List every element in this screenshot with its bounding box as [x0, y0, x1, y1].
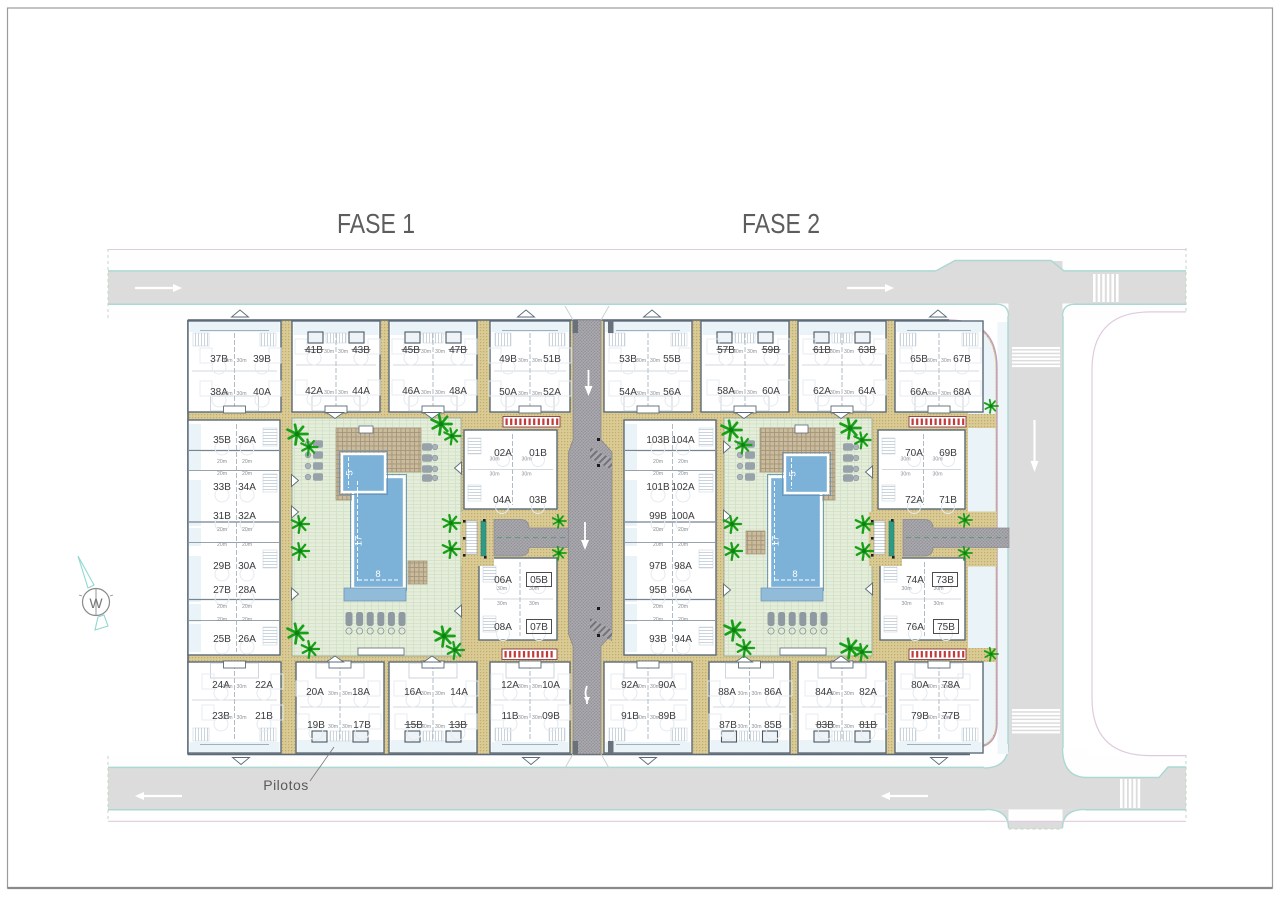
svg-text:43B: 43B — [352, 345, 370, 356]
svg-text:100A: 100A — [671, 511, 695, 522]
svg-text:30m: 30m — [941, 391, 951, 397]
svg-text:35B: 35B — [213, 435, 231, 446]
svg-text:FASE 2: FASE 2 — [742, 208, 820, 239]
svg-text:30m: 30m — [932, 457, 942, 463]
svg-text:25B: 25B — [213, 634, 231, 645]
svg-text:30m: 30m — [521, 457, 531, 463]
svg-text:56A: 56A — [663, 387, 681, 398]
svg-text:30m: 30m — [435, 691, 445, 697]
svg-text:30m: 30m — [636, 391, 646, 397]
svg-text:68A: 68A — [953, 387, 971, 398]
svg-text:30m: 30m — [650, 358, 660, 364]
svg-text:30m: 30m — [844, 390, 854, 396]
svg-text:01B: 01B — [529, 448, 547, 459]
svg-text:61B: 61B — [813, 345, 831, 356]
svg-text:30m: 30m — [529, 601, 539, 607]
svg-text:30m: 30m — [518, 684, 528, 690]
svg-text:36A: 36A — [238, 435, 256, 446]
svg-text:30m: 30m — [497, 586, 507, 592]
svg-text:75B: 75B — [937, 622, 955, 633]
svg-text:103B: 103B — [646, 435, 670, 446]
svg-text:30m: 30m — [489, 472, 499, 478]
svg-text:30m: 30m — [236, 715, 246, 721]
svg-text:30m: 30m — [650, 715, 660, 721]
svg-text:21B: 21B — [255, 711, 273, 722]
svg-text:71B: 71B — [939, 495, 957, 506]
svg-text:31B: 31B — [213, 511, 231, 522]
svg-text:26A: 26A — [238, 634, 256, 645]
svg-text:20m: 20m — [242, 542, 252, 548]
svg-text:90A: 90A — [658, 680, 676, 691]
svg-text:16A: 16A — [404, 687, 422, 698]
svg-text:87B: 87B — [719, 720, 737, 731]
svg-text:30m: 30m — [518, 715, 528, 721]
svg-text:20m: 20m — [217, 459, 227, 465]
svg-text:20m: 20m — [653, 542, 663, 548]
svg-text:30m: 30m — [532, 358, 542, 364]
svg-text:FASE 1: FASE 1 — [337, 208, 415, 239]
svg-text:20m: 20m — [653, 459, 663, 465]
svg-text:48A: 48A — [449, 386, 467, 397]
svg-text:30m: 30m — [733, 390, 743, 396]
svg-text:44A: 44A — [352, 386, 370, 397]
svg-text:20m: 20m — [678, 527, 688, 533]
svg-text:40A: 40A — [253, 387, 271, 398]
svg-text:08A: 08A — [494, 622, 512, 633]
svg-text:18A: 18A — [352, 687, 370, 698]
svg-text:30m: 30m — [222, 358, 232, 364]
svg-text:07B: 07B — [530, 622, 548, 633]
svg-text:30m: 30m — [751, 691, 761, 697]
svg-text:13B: 13B — [449, 720, 467, 731]
svg-text:30m: 30m — [222, 715, 232, 721]
svg-text:88A: 88A — [718, 687, 736, 698]
svg-text:51B: 51B — [543, 354, 561, 365]
svg-text:30m: 30m — [737, 691, 747, 697]
svg-text:30m: 30m — [338, 390, 348, 396]
svg-text:101B: 101B — [646, 482, 670, 493]
svg-text:30m: 30m — [636, 684, 646, 690]
svg-text:85B: 85B — [764, 720, 782, 731]
svg-text:20m: 20m — [242, 471, 252, 477]
svg-text:95B: 95B — [649, 585, 667, 596]
svg-text:20m: 20m — [653, 527, 663, 533]
svg-text:30m: 30m — [830, 349, 840, 355]
svg-text:99B: 99B — [649, 511, 667, 522]
svg-text:27B: 27B — [213, 585, 231, 596]
svg-text:30m: 30m — [901, 601, 911, 607]
svg-text:104A: 104A — [671, 435, 695, 446]
svg-text:46A: 46A — [402, 386, 420, 397]
svg-text:30m: 30m — [941, 358, 951, 364]
svg-text:30m: 30m — [900, 457, 910, 463]
svg-text:20m: 20m — [678, 617, 688, 623]
svg-text:17: 17 — [354, 536, 365, 547]
svg-text:59B: 59B — [762, 345, 780, 356]
svg-text:65B: 65B — [910, 354, 928, 365]
svg-text:47B: 47B — [449, 345, 467, 356]
svg-text:30m: 30m — [933, 586, 943, 592]
svg-text:12A: 12A — [501, 680, 519, 691]
svg-text:98A: 98A — [674, 561, 692, 572]
svg-text:45B: 45B — [402, 345, 420, 356]
svg-text:8: 8 — [792, 569, 797, 580]
svg-text:20m: 20m — [217, 604, 227, 610]
svg-text:54A: 54A — [619, 387, 637, 398]
svg-text:04A: 04A — [493, 495, 511, 506]
svg-text:8: 8 — [375, 569, 380, 580]
svg-text:30m: 30m — [518, 391, 528, 397]
svg-text:05B: 05B — [530, 575, 548, 586]
svg-text:96A: 96A — [674, 585, 692, 596]
svg-text:30m: 30m — [636, 715, 646, 721]
svg-text:30m: 30m — [435, 349, 445, 355]
svg-text:30m: 30m — [636, 358, 646, 364]
svg-text:30m: 30m — [497, 601, 507, 607]
svg-text:09B: 09B — [542, 711, 560, 722]
svg-text:30m: 30m — [435, 724, 445, 730]
svg-text:30m: 30m — [830, 724, 840, 730]
svg-text:30m: 30m — [421, 691, 431, 697]
svg-text:20m: 20m — [242, 604, 252, 610]
svg-text:74A: 74A — [906, 575, 924, 586]
svg-text:34A: 34A — [238, 482, 256, 493]
svg-text:30m: 30m — [342, 691, 352, 697]
svg-text:30m: 30m — [900, 472, 910, 478]
svg-text:17: 17 — [771, 536, 782, 547]
svg-text:30m: 30m — [338, 349, 348, 355]
svg-text:14A: 14A — [450, 687, 468, 698]
svg-text:50A: 50A — [499, 387, 517, 398]
svg-text:30m: 30m — [751, 724, 761, 730]
svg-text:20m: 20m — [217, 527, 227, 533]
svg-text:Pilotos: Pilotos — [263, 777, 309, 793]
svg-text:39B: 39B — [253, 354, 271, 365]
svg-text:30m: 30m — [421, 724, 431, 730]
svg-text:41B: 41B — [305, 345, 323, 356]
svg-text:32A: 32A — [238, 511, 256, 522]
svg-text:28A: 28A — [238, 585, 256, 596]
svg-text:29B: 29B — [213, 561, 231, 572]
svg-text:20m: 20m — [653, 617, 663, 623]
svg-text:30m: 30m — [529, 586, 539, 592]
svg-text:30m: 30m — [830, 691, 840, 697]
svg-text:20m: 20m — [653, 604, 663, 610]
svg-text:20m: 20m — [217, 617, 227, 623]
svg-text:30m: 30m — [932, 472, 942, 478]
svg-text:30m: 30m — [927, 715, 937, 721]
svg-text:30m: 30m — [532, 684, 542, 690]
svg-text:30m: 30m — [830, 390, 840, 396]
svg-text:30m: 30m — [737, 724, 747, 730]
svg-text:66A: 66A — [910, 387, 928, 398]
svg-text:30m: 30m — [489, 457, 499, 463]
svg-text:30A: 30A — [238, 561, 256, 572]
svg-text:30m: 30m — [844, 349, 854, 355]
svg-text:30m: 30m — [342, 724, 352, 730]
svg-text:10A: 10A — [542, 680, 560, 691]
svg-text:82A: 82A — [859, 687, 877, 698]
svg-text:03B: 03B — [529, 495, 547, 506]
svg-text:60A: 60A — [762, 386, 780, 397]
svg-text:22A: 22A — [255, 680, 273, 691]
svg-text:30m: 30m — [236, 358, 246, 364]
svg-text:30m: 30m — [236, 391, 246, 397]
svg-text:5: 5 — [345, 470, 356, 475]
svg-text:86A: 86A — [764, 687, 782, 698]
svg-text:30m: 30m — [421, 390, 431, 396]
svg-text:30m: 30m — [941, 715, 951, 721]
svg-text:30m: 30m — [844, 691, 854, 697]
svg-text:30m: 30m — [435, 390, 445, 396]
svg-text:73B: 73B — [936, 575, 954, 586]
svg-text:30m: 30m — [650, 684, 660, 690]
svg-text:19B: 19B — [307, 720, 325, 731]
svg-text:30m: 30m — [521, 472, 531, 478]
svg-text:30m: 30m — [927, 391, 937, 397]
svg-text:30m: 30m — [927, 684, 937, 690]
svg-text:5: 5 — [788, 471, 799, 476]
svg-text:62A: 62A — [813, 386, 831, 397]
svg-text:49B: 49B — [499, 354, 517, 365]
svg-text:30m: 30m — [324, 390, 334, 396]
svg-text:11B: 11B — [501, 711, 518, 722]
svg-text:20m: 20m — [678, 542, 688, 548]
svg-text:30m: 30m — [222, 684, 232, 690]
svg-text:53B: 53B — [619, 354, 637, 365]
svg-text:30m: 30m — [421, 349, 431, 355]
svg-text:20m: 20m — [242, 617, 252, 623]
svg-text:94A: 94A — [674, 634, 692, 645]
svg-text:30m: 30m — [933, 601, 943, 607]
svg-text:63B: 63B — [858, 345, 876, 356]
svg-text:20A: 20A — [306, 687, 324, 698]
svg-text:72A: 72A — [905, 495, 923, 506]
svg-text:30m: 30m — [532, 715, 542, 721]
svg-text:102A: 102A — [671, 482, 695, 493]
svg-text:76A: 76A — [906, 622, 924, 633]
svg-text:30m: 30m — [236, 684, 246, 690]
svg-text:30m: 30m — [747, 349, 757, 355]
svg-text:52A: 52A — [543, 387, 561, 398]
svg-text:97B: 97B — [649, 561, 667, 572]
svg-text:20m: 20m — [242, 527, 252, 533]
svg-text:55B: 55B — [663, 354, 681, 365]
svg-text:20m: 20m — [678, 459, 688, 465]
svg-text:30m: 30m — [747, 390, 757, 396]
svg-text:33B: 33B — [213, 482, 231, 493]
svg-text:30m: 30m — [222, 391, 232, 397]
svg-text:W: W — [89, 595, 103, 611]
svg-text:30m: 30m — [941, 684, 951, 690]
svg-text:30m: 30m — [324, 349, 334, 355]
svg-text:17B: 17B — [353, 720, 371, 731]
svg-text:30m: 30m — [927, 358, 937, 364]
svg-text:20m: 20m — [242, 459, 252, 465]
svg-text:67B: 67B — [953, 354, 971, 365]
svg-text:42A: 42A — [305, 386, 323, 397]
svg-text:89B: 89B — [658, 711, 676, 722]
svg-text:30m: 30m — [733, 349, 743, 355]
svg-text:30m: 30m — [901, 586, 911, 592]
svg-text:64A: 64A — [858, 386, 876, 397]
svg-text:20m: 20m — [653, 471, 663, 477]
svg-text:93B: 93B — [649, 634, 667, 645]
svg-text:30m: 30m — [328, 724, 338, 730]
svg-text:30m: 30m — [844, 724, 854, 730]
svg-text:20m: 20m — [217, 542, 227, 548]
svg-text:81B: 81B — [859, 720, 877, 731]
svg-text:20m: 20m — [217, 471, 227, 477]
svg-text:30m: 30m — [650, 391, 660, 397]
svg-text:20m: 20m — [678, 471, 688, 477]
svg-text:30m: 30m — [328, 691, 338, 697]
svg-text:30m: 30m — [532, 391, 542, 397]
svg-text:20m: 20m — [678, 604, 688, 610]
svg-text:06A: 06A — [494, 575, 512, 586]
svg-text:30m: 30m — [518, 358, 528, 364]
